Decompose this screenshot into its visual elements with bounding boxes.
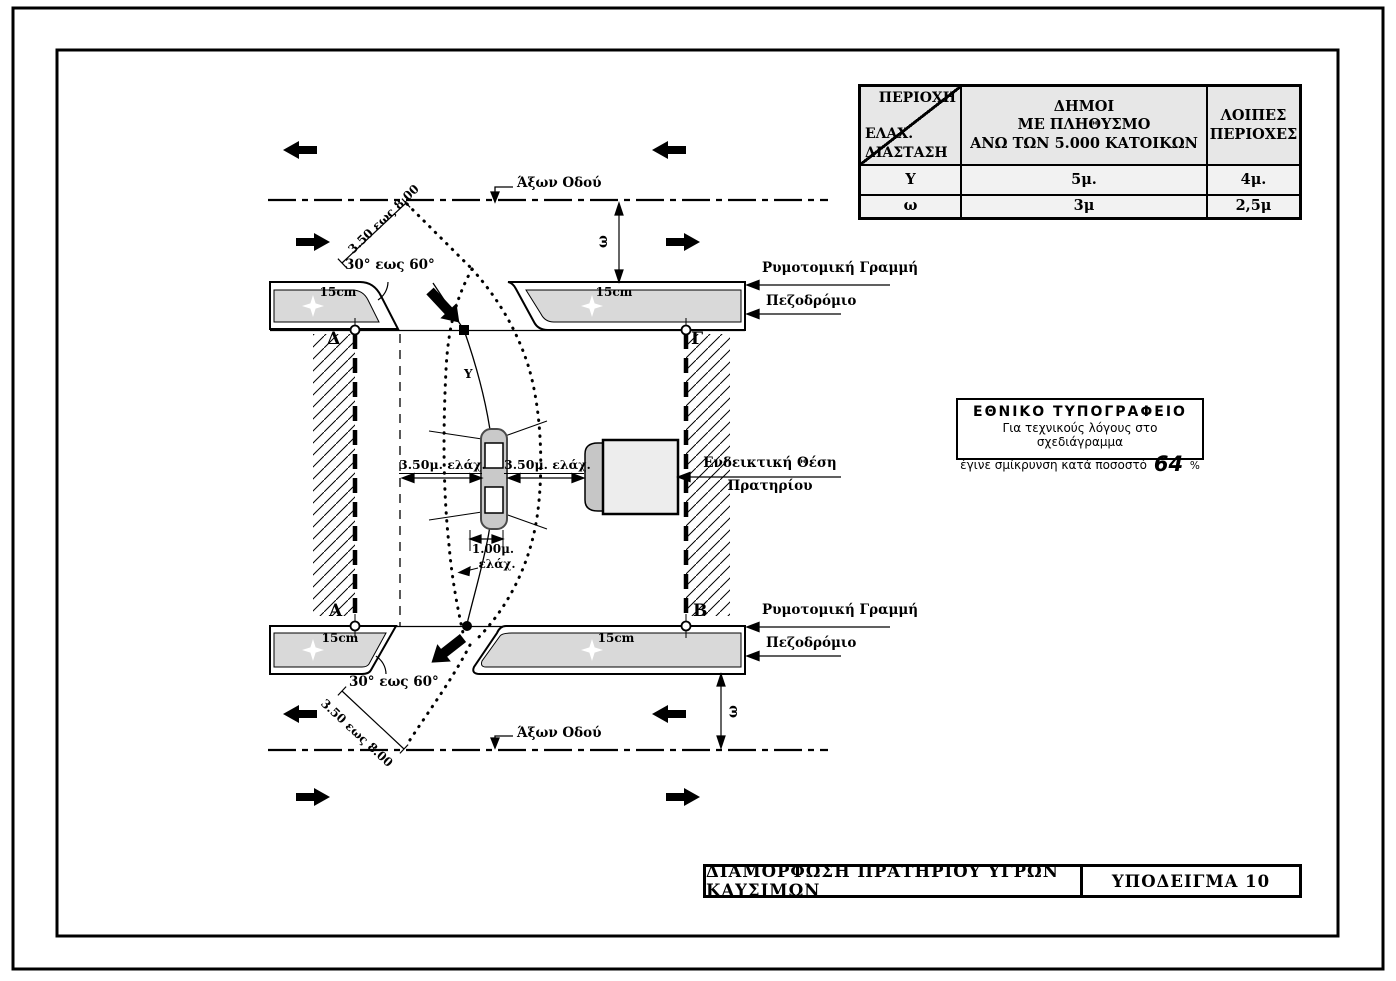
table-row1-dim: Υ: [861, 166, 962, 196]
corner-label-gamma: Γ: [691, 330, 703, 349]
table-corner-header-cell: ΠΕΡΙΟΧΗ ΕΛΑΧ. ΔΙΑΣΤΑΣΗ: [861, 87, 962, 166]
national-printing-note-box: ΕΘΝΙΚΟ ΤΥΠΟΓΡΑΦΕΙΟ Για τεχνικούς λόγους …: [956, 398, 1204, 460]
dimension-spec-table: ΠΕΡΙΟΧΗ ΕΛΑΧ. ΔΙΑΣΤΑΣΗ ΔΗΜΟΙ ΜΕ ΠΛΗΘΥΣΜΟ…: [858, 84, 1302, 220]
arrowhead-down-icon: [491, 738, 499, 748]
table-col2-header-line1: ΔΗΜΟΙ: [1054, 98, 1114, 116]
traffic-arrow-left-icon: [652, 705, 686, 723]
traffic-arrow-left-icon: [283, 705, 317, 723]
traffic-arrow-right-icon: [296, 788, 330, 806]
table-corner-bottom-label1: ΕΛΑΧ.: [865, 126, 913, 144]
table-row2-municipalities: 3μ: [962, 196, 1208, 217]
arrowhead-up-icon: [615, 203, 623, 215]
table-row2-dim: ω: [861, 196, 962, 217]
road-axis-label-bottom: Άξων Οδού: [517, 726, 602, 741]
arrowhead-down-icon: [615, 270, 623, 282]
exit-arrow-icon: [425, 629, 470, 671]
curb-width-label: 15cm: [320, 632, 360, 645]
trajectory-left-branch: [444, 269, 472, 633]
traffic-arrow-right-icon: [666, 788, 700, 806]
corner-label-alpha: Α: [329, 602, 342, 621]
car-windshield: [485, 443, 503, 468]
station-position-label-line2: Πρατηρίου: [695, 479, 845, 494]
note-line2: έγινε σμίκρυνση κατά ποσοστό 64 %: [958, 450, 1202, 474]
reduction-percent-value: 64: [1154, 452, 1183, 476]
table-row2-other: 2,5μ: [1208, 196, 1299, 217]
station-position-label-line1: Ενδεικτική Θέση: [695, 456, 845, 471]
arrowhead-left-icon: [402, 474, 414, 483]
arrowhead-down-icon: [491, 192, 499, 202]
road-axis-label-top: Άξων Οδού: [517, 176, 602, 191]
curb-width-label: 15cm: [596, 632, 636, 645]
arrowhead-right-icon: [572, 474, 584, 483]
note-line2-text: έγινε σμίκρυνση κατά ποσοστό: [960, 458, 1147, 472]
traffic-arrow-right-icon: [296, 233, 330, 251]
island-width-label: 1.00μ.: [470, 543, 516, 556]
table-row1-other: 4μ.: [1208, 166, 1299, 196]
node-circle: [462, 621, 472, 631]
drawing-title: ΔΙΑΜΟΡΦΩΣΗ ΠΡΑΤΗΡΙΟΥ ΥΓΡΩΝ ΚΑΥΣΙΜΩΝ: [706, 867, 1083, 895]
traffic-arrow-left-icon: [283, 141, 317, 159]
arrowhead-left-icon: [747, 652, 759, 661]
table-col2-header-line3: ΑΝΩ ΤΩΝ 5.000 ΚΑΤΟΙΚΩΝ: [970, 135, 1198, 153]
corner-marker: [682, 622, 691, 631]
hatch-area-right: [686, 334, 730, 616]
sidewalk-label-bottom: Πεζοδρόμιο: [766, 636, 856, 651]
arrowhead-up-icon: [717, 674, 725, 686]
engineering-drawing-page: Άξων Οδού Άξων Οδού Ρυμοτομική Γραμμή Πε…: [0, 0, 1396, 981]
curb-width-label: 15cm: [594, 286, 634, 299]
upsilon-label: Υ: [464, 368, 473, 381]
table-row1-municipalities: 5μ.: [962, 166, 1208, 196]
node-square: [459, 325, 469, 335]
note-title: ΕΘΝΙΚΟ ΤΥΠΟΓΡΑΦΕΙΟ: [958, 404, 1202, 420]
drawing-title-bar: ΔΙΑΜΟΡΦΩΣΗ ΠΡΑΤΗΡΙΟΥ ΥΓΡΩΝ ΚΑΥΣΙΜΩΝ ΥΠΟΔ…: [703, 864, 1302, 898]
curb-width-label: 15cm: [318, 286, 358, 299]
pump-canopy-cap: [585, 443, 604, 511]
pump-island: [585, 440, 678, 514]
arrowhead-left-icon: [747, 623, 759, 632]
traffic-arrow-right-icon: [666, 233, 700, 251]
table-col3-header-line2: ΠΕΡΙΟΧΕΣ: [1210, 126, 1298, 144]
table-col3-header-line1: ΛΟΙΠΕΣ: [1221, 107, 1287, 125]
table-corner-top-label: ΠΕΡΙΟΧΗ: [879, 90, 956, 108]
corner-marker: [682, 326, 691, 335]
min-clearance-label-left: 3.50μ. ελάχ.: [399, 458, 482, 474]
table-corner-bottom-label2: ΔΙΑΣΤΑΣΗ: [865, 145, 948, 163]
min-clearance-label-right: 3.50μ. ελάχ.: [504, 458, 584, 474]
arrowhead-left-icon: [747, 281, 759, 290]
car-rear-window: [485, 487, 503, 513]
pump-building: [603, 440, 678, 514]
table-col2-header: ΔΗΜΟΙ ΜΕ ΠΛΗΘΥΣΜΟ ΑΝΩ ΤΩΝ 5.000 ΚΑΤΟΙΚΩΝ: [962, 87, 1208, 166]
angle-label-bottom: 30° εως 60°: [349, 675, 439, 690]
corner-marker: [351, 326, 360, 335]
corner-marker: [351, 622, 360, 631]
island-width-min-label: ελάχ.: [477, 558, 517, 571]
angle-arcs: [376, 282, 388, 674]
arrowhead-down-icon: [717, 736, 725, 748]
hatch-area-left: [313, 334, 355, 616]
traffic-arrow-left-icon: [652, 141, 686, 159]
note-line1: Για τεχνικούς λόγους στο σχεδιάγραμμα: [958, 421, 1202, 449]
table-col3-header: ΛΟΙΠΕΣ ΠΕΡΙΟΧΕΣ: [1208, 87, 1299, 166]
percent-sign: %: [1190, 460, 1200, 472]
table-col2-header-line2: ΜΕ ΠΛΗΘΥΣΜΟ: [1018, 116, 1151, 134]
arrowhead-left-icon: [508, 474, 520, 483]
angle-label-top: 30° εως 60°: [345, 258, 435, 273]
building-line-label-bottom: Ρυμοτομική Γραμμή: [762, 603, 918, 618]
drawing-doc-ref: ΥΠΟΔΕΙΓΜΑ 10: [1083, 867, 1299, 895]
arrowhead-left-icon: [459, 567, 470, 576]
building-line-label-top: Ρυμοτομική Γραμμή: [762, 261, 918, 276]
corner-label-beta: Β: [693, 602, 707, 621]
omega-label-bottom: ω: [726, 705, 741, 718]
entry-exit-arrows: [422, 283, 470, 671]
omega-label-top: ω: [596, 235, 611, 248]
corner-label-delta: Δ: [327, 330, 340, 349]
sidewalk-label-top: Πεζοδρόμιο: [766, 294, 856, 309]
arrowhead-left-icon: [747, 310, 759, 319]
